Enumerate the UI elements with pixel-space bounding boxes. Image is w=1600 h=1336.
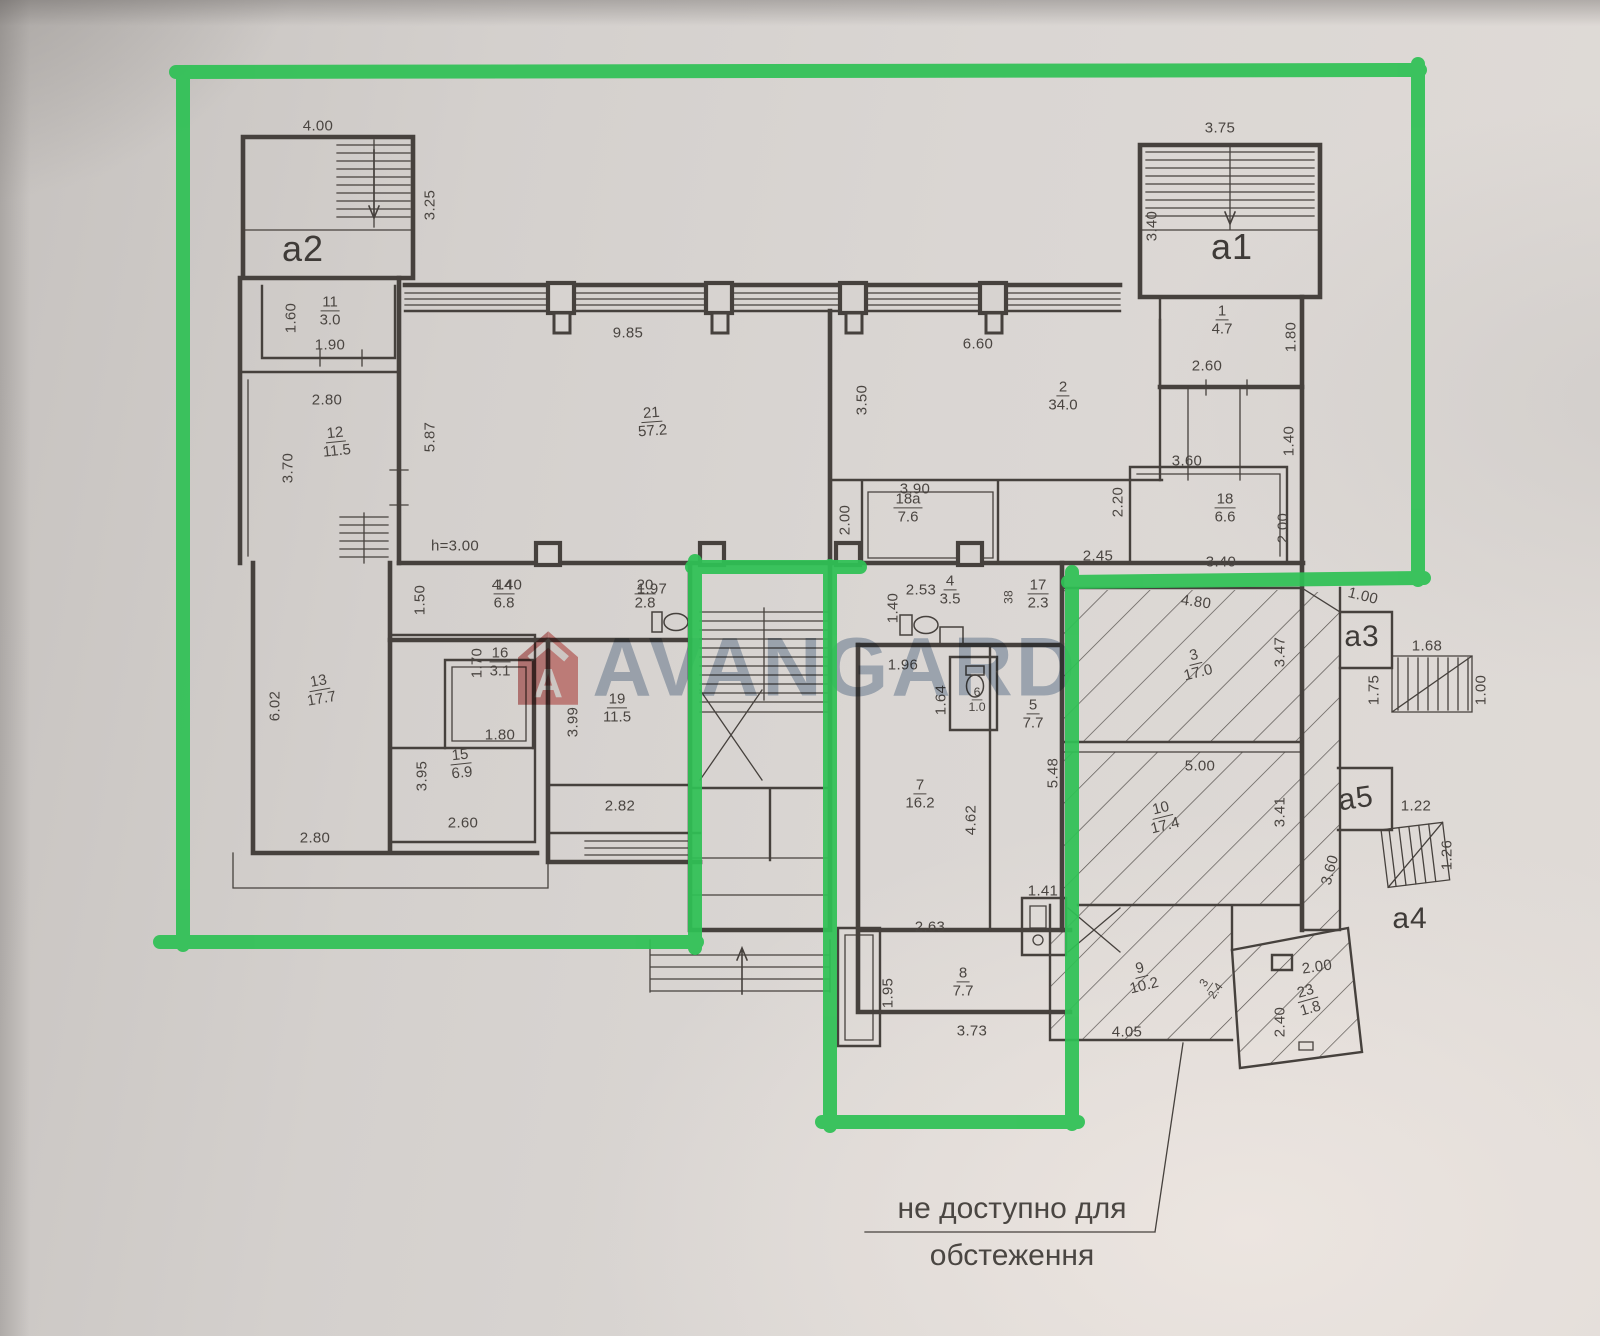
floor-plan-photo: 4.003.753.253.401.601.909.856.601.802.60… bbox=[0, 0, 1600, 1336]
green-marker-annotation bbox=[0, 0, 1600, 1336]
